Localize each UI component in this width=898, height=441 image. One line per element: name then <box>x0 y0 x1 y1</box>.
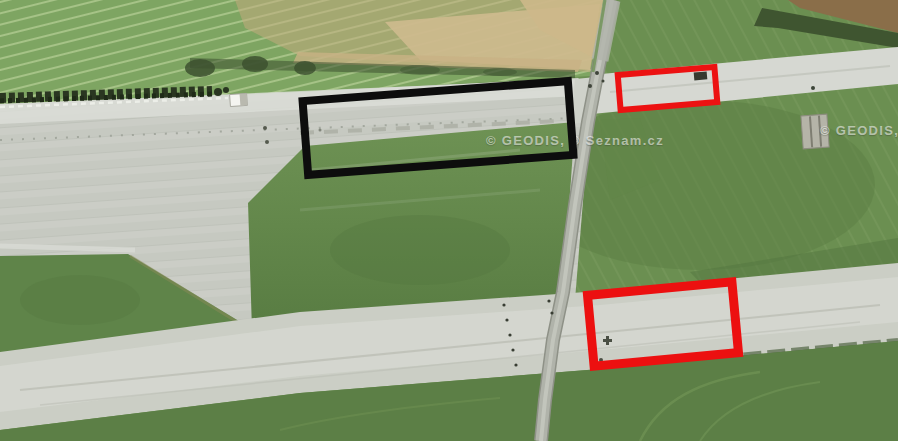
annotation-red-box-top <box>614 64 720 113</box>
concrete-pad <box>801 114 829 149</box>
aerial-photo-canvas <box>0 0 898 441</box>
aerial-photo: © GEODIS, © Seznam.cz © GEODIS, © Seznam… <box>0 0 898 441</box>
annotation-red-box-bottom <box>583 277 744 371</box>
hut <box>230 93 248 106</box>
